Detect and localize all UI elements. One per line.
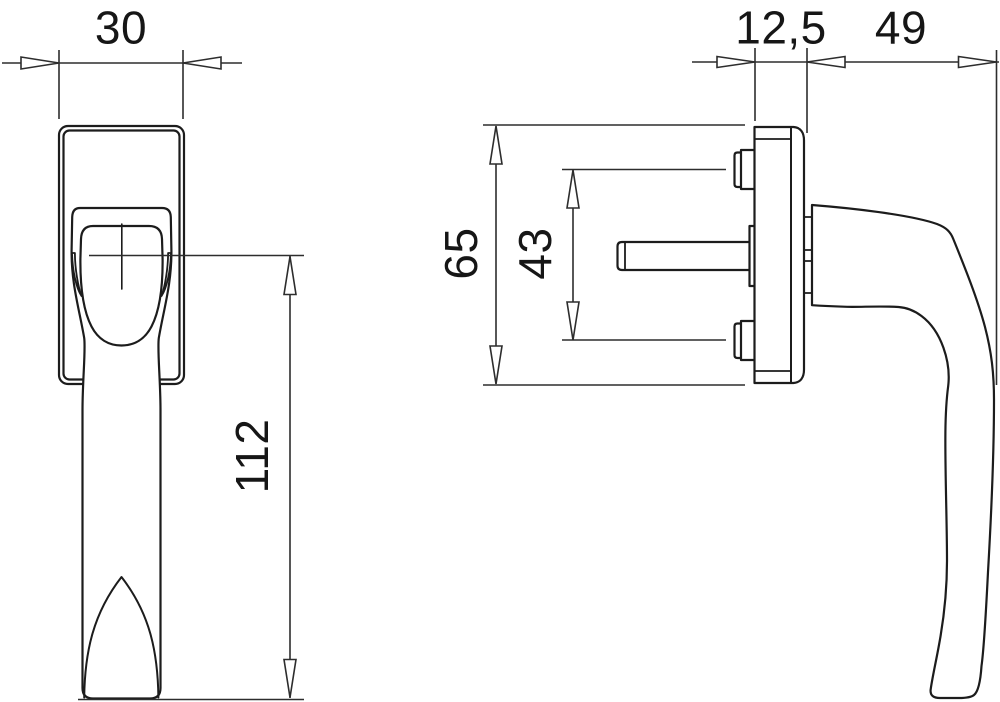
arrowhead-up-icon [567,170,579,208]
arrowhead-right-icon [21,57,59,69]
arrowhead-right-icon [717,57,755,68]
handle-joint-lines [804,217,812,293]
arrowhead-right-icon [959,57,997,68]
label-width-30: 30 [95,2,147,54]
label-plate-depth-12-5: 12,5 [735,2,827,54]
spindle [618,242,750,270]
dimension-30 [2,50,242,119]
arrowhead-down-icon [284,660,296,698]
side-view [618,127,995,698]
label-screw-spacing-43: 43 [509,227,561,279]
arrowhead-up-icon [490,126,502,164]
label-handle-depth-49: 49 [875,2,927,54]
technical-drawing-canvas: 30 12,5 49 65 43 112 [0,0,1000,702]
arrowhead-down-icon [567,302,579,340]
plate-outline [755,127,805,383]
handle-side-silhouette [812,205,994,698]
arrowhead-down-icon [490,346,502,384]
screw-boss-bottom [741,321,755,360]
screw-boss-top [741,150,755,189]
arrowhead-left-icon [183,57,221,69]
label-plate-height-65: 65 [435,227,487,279]
arrowhead-up-icon [284,257,296,295]
arrowhead-left-icon [807,57,845,68]
front-view [59,126,184,699]
window-handle-drawing: 30 12,5 49 65 43 112 [0,0,1000,702]
label-handle-length-112: 112 [226,419,278,494]
